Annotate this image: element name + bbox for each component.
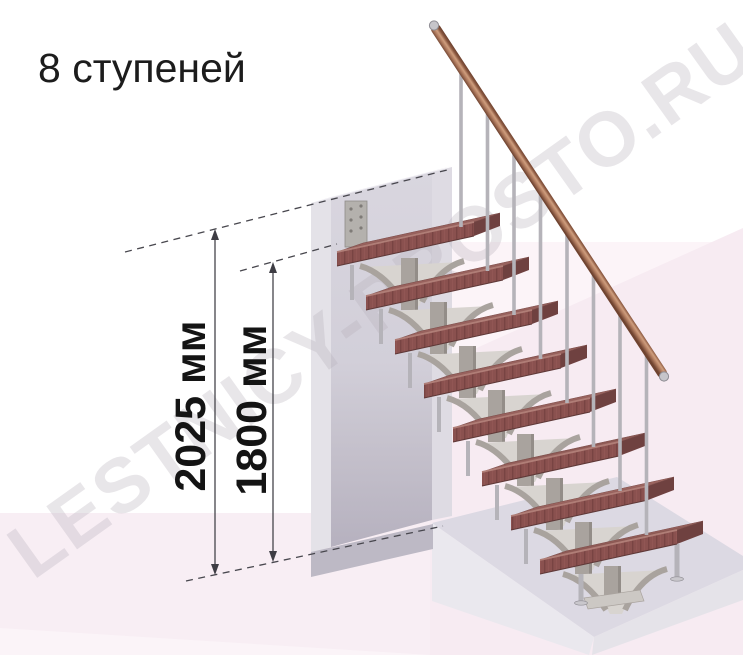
page-title: 8 ступеней (38, 45, 246, 91)
diagram-scene: LESTNICY-PROSTO.RU 2025 мм 1800 мм 8 сту… (0, 0, 743, 655)
wall-mount-bracket (345, 201, 367, 247)
handrail-top-cap (429, 21, 438, 30)
dimension-label-total-height: 2025 мм (167, 320, 215, 491)
side-leg-foot (671, 577, 684, 581)
dimension-label-stair-height: 1800 мм (228, 324, 276, 495)
handrail-bottom-cap (659, 372, 668, 381)
front-leg-foot (575, 601, 588, 605)
staircase-diagram: LESTNICY-PROSTO.RU 2025 мм 1800 мм 8 сту… (0, 0, 743, 655)
